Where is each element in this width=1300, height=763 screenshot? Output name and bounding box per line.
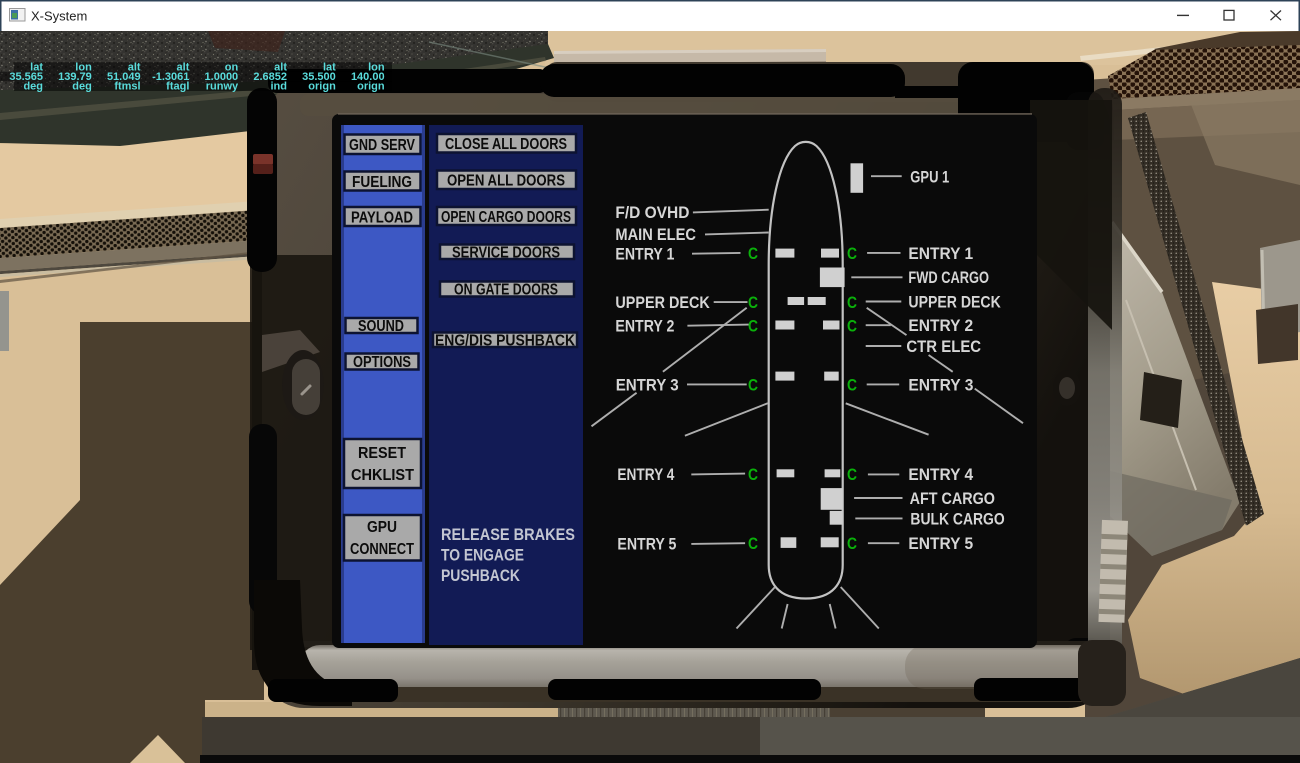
svg-text:X-System: X-System xyxy=(31,9,87,24)
